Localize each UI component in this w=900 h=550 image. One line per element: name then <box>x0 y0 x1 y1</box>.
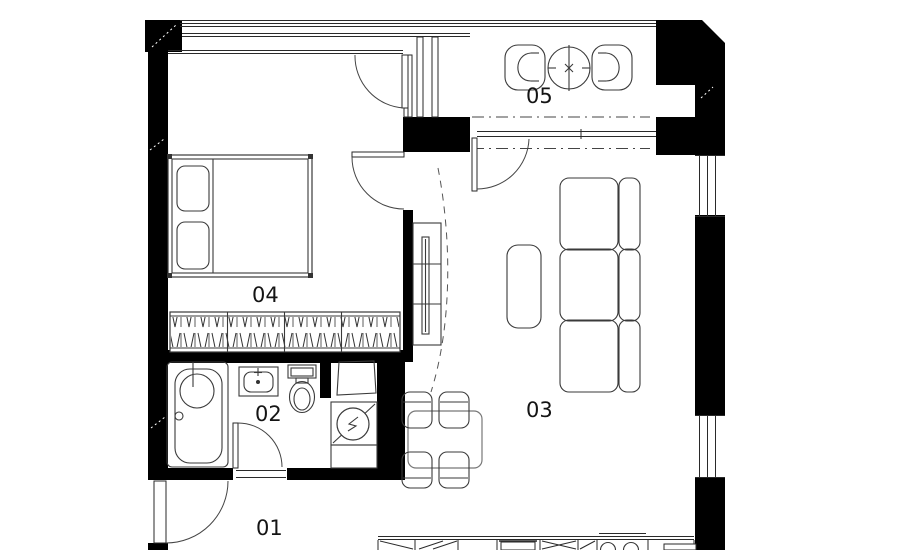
balcony-divider <box>417 37 438 117</box>
left-wall <box>148 20 168 480</box>
balcony-chair-right <box>592 45 632 90</box>
sofa <box>560 178 640 392</box>
room-label-bathroom: 02 <box>255 402 282 426</box>
double-bed <box>167 154 313 278</box>
dining-chair <box>439 392 469 428</box>
toilet-partition-wall <box>320 357 331 398</box>
balcony-sliding-window <box>472 117 656 149</box>
right-window-lower <box>695 415 725 478</box>
room-label-hall: 01 <box>256 516 283 540</box>
kitchen-counter <box>378 534 696 550</box>
dining-chair <box>402 452 432 488</box>
bedroom-entry-door <box>352 152 404 209</box>
walls <box>145 20 725 550</box>
swing-clearance-arc <box>431 168 448 392</box>
toilet <box>288 365 316 413</box>
dining-chair <box>439 452 469 488</box>
entrance-wall-stub <box>148 543 168 550</box>
balcony-furniture <box>505 45 632 91</box>
bathroom-bottom-wall-left <box>150 468 233 480</box>
floor-plan: 01 02 03 04 05 <box>0 0 900 550</box>
bedroom-balcony-door <box>355 55 408 108</box>
wardrobe-with-hangers <box>170 312 400 352</box>
room-label-balcony: 05 <box>526 84 553 108</box>
stove <box>599 534 646 550</box>
entrance-door <box>154 481 228 543</box>
living-room-furniture <box>402 178 640 488</box>
tv-cabinet <box>413 223 441 345</box>
kitchen-sink <box>499 541 537 550</box>
washing-machine <box>331 402 377 445</box>
right-wall-upper <box>695 215 725 415</box>
bathroom-bottom-wall-right <box>287 468 405 480</box>
bathroom-door <box>233 423 286 478</box>
balcony-railing <box>180 21 656 27</box>
dining-set <box>402 392 482 488</box>
right-window-upper <box>695 155 725 217</box>
bathroom-right-wall <box>377 350 405 480</box>
bathtub <box>167 362 228 467</box>
bedroom-east-wall-block <box>403 117 470 152</box>
coffee-table <box>507 245 541 328</box>
right-wall-lower <box>695 478 725 550</box>
dining-chair <box>402 392 432 428</box>
washbasin <box>239 367 278 396</box>
living-balcony-door <box>472 138 529 191</box>
room-label-bedroom: 04 <box>252 283 279 307</box>
dining-table <box>408 411 482 468</box>
water-heater <box>337 361 376 395</box>
room-label-living-room: 03 <box>526 398 553 422</box>
bedroom-east-wall <box>403 210 413 362</box>
balcony-wall-notch <box>656 85 695 117</box>
bedroom-furniture <box>167 154 400 352</box>
bathroom-counter <box>331 445 377 468</box>
balcony-round-table <box>548 45 590 91</box>
bedroom-window <box>168 34 470 54</box>
counter-end-panel <box>664 544 696 550</box>
floor-plan-svg: 01 02 03 04 05 <box>0 0 900 550</box>
